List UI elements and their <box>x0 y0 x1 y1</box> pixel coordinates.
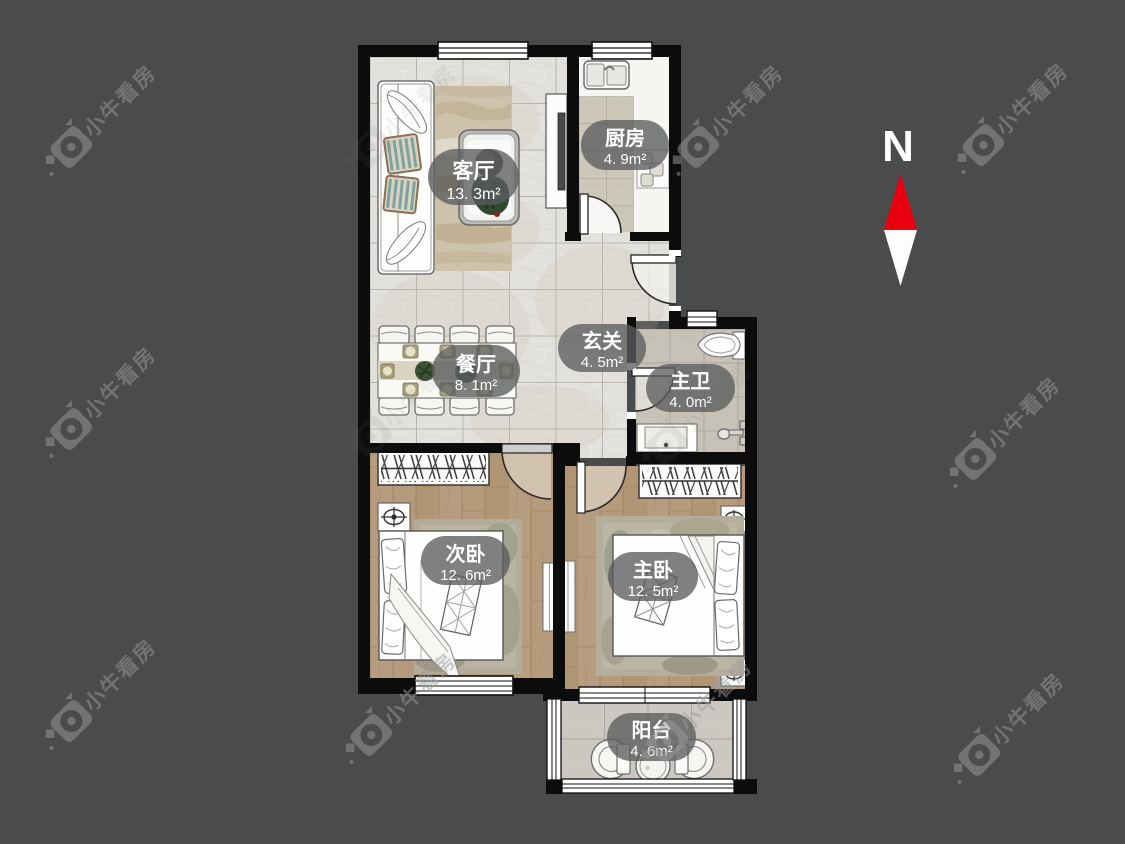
svg-text:厨房: 厨房 <box>605 126 645 150</box>
svg-text:玄关: 玄关 <box>582 329 622 353</box>
svg-text:13. 3m²: 13. 3m² <box>446 186 501 203</box>
svg-text:客厅: 客厅 <box>453 159 495 183</box>
svg-text:12. 6m²: 12. 6m² <box>440 567 491 584</box>
svg-text:N: N <box>882 122 914 171</box>
svg-text:次卧: 次卧 <box>446 542 486 566</box>
svg-text:主卧: 主卧 <box>633 558 673 582</box>
svg-text:8. 1m²: 8. 1m² <box>455 377 498 394</box>
svg-text:12. 5m²: 12. 5m² <box>628 583 679 600</box>
svg-text:主卫: 主卫 <box>671 369 711 393</box>
svg-text:4. 9m²: 4. 9m² <box>604 151 647 168</box>
svg-text:餐厅: 餐厅 <box>456 352 496 376</box>
svg-text:4. 5m²: 4. 5m² <box>581 354 624 371</box>
